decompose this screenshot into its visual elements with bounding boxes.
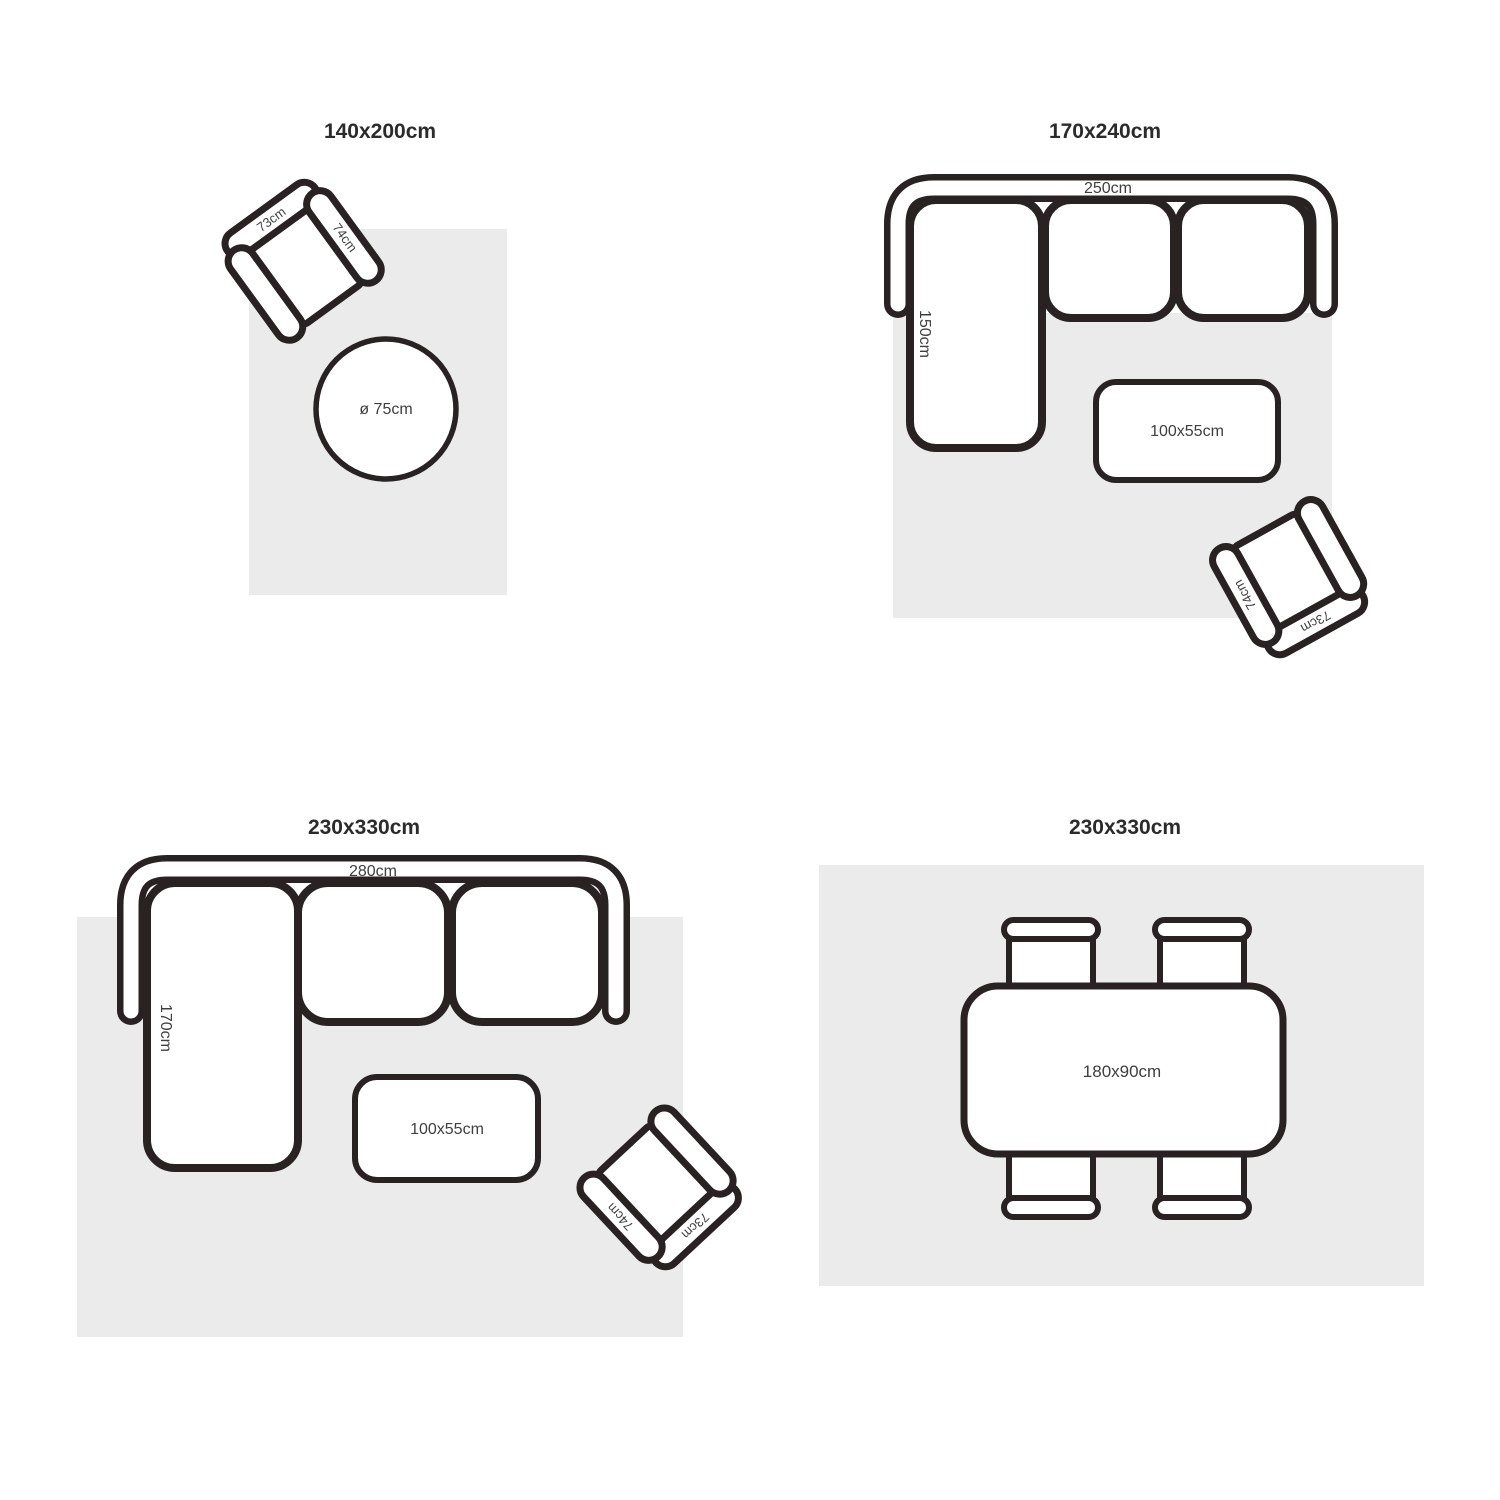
sofa-width-label: 250cm [1084,180,1132,197]
rug-size-title: 230x330cm [1069,816,1181,839]
round-table-label: ø 75cm [359,401,412,418]
coffee-table-label: 100x55cm [410,1121,484,1138]
rug-size-title: 140x200cm [324,120,436,143]
quadrant-140x200: 140x200cm ø 75cm 73cm 74cm [213,120,507,595]
chair-backrest [1004,1198,1098,1217]
quadrant-230x330-dining: 230x330cm 180x90cm [819,816,1424,1286]
sofa-chaise-label: 150cm [916,310,933,358]
chair-backrest [1155,1198,1249,1217]
rug-size-guide-diagram: 140x200cm ø 75cm 73cm 74cm 170x240cm 250… [0,0,1500,1500]
quadrant-230x330-living: 230x330cm 280cm 170cm 100x55cm 73cm 74cm [77,816,750,1337]
sofa-cushion [298,883,448,1022]
rug-size-title: 170x240cm [1049,120,1161,143]
chair-backrest [1155,920,1249,939]
sofa-chaise-label: 170cm [157,1004,174,1052]
sofa-cushion [452,883,602,1022]
sofa-cushion [1178,200,1308,318]
chair-backrest [1004,920,1098,939]
sofa-cushion [1045,200,1174,318]
sofa-width-label: 280cm [349,863,397,880]
quadrant-170x240: 170x240cm 250cm 150cm 100x55cm 73cm 74cm [893,120,1376,663]
dining-table-label: 180x90cm [1083,1062,1161,1081]
rug-size-title: 230x330cm [308,816,420,839]
coffee-table-label: 100x55cm [1150,423,1224,440]
